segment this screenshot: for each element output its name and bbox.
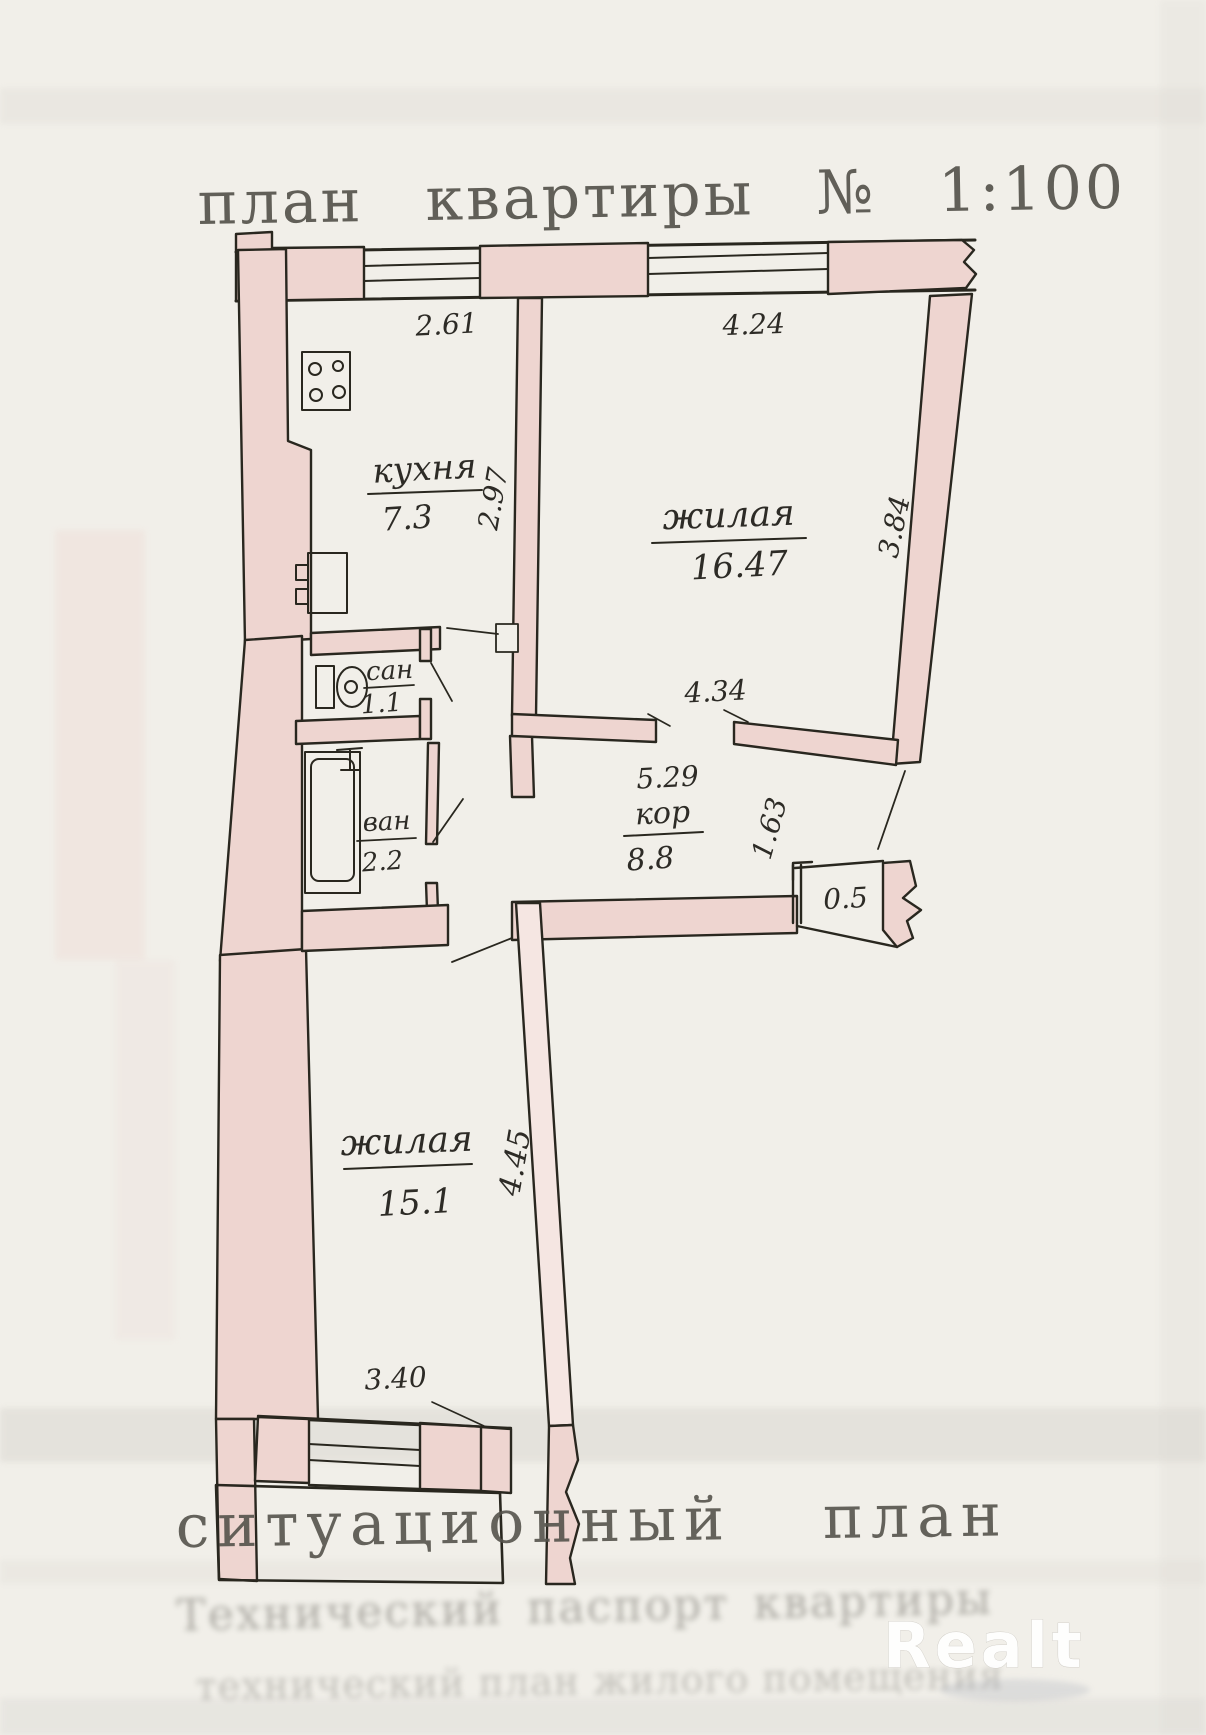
closet-corner-notch [793,862,812,880]
wall-wc-bath-divider [296,716,420,744]
dim-living1-bottom: 4.34 [683,673,748,709]
wall-bath-east [426,743,439,844]
dimension-ticks [432,710,748,1426]
room-labels: кухня 7.3 жилая 16.47 сан 1.1 ван 2.2 ко… [340,446,869,1225]
realt-watermark: Realt [883,1609,1086,1682]
living2-label: жилая [340,1119,474,1165]
pink-smear [115,960,175,1340]
living1-label: жилая [662,493,796,539]
kitchen-door-jamb [496,624,518,652]
edge-shade [1160,0,1206,1735]
kitchen-door-leaf [447,628,498,634]
corridor-label-underline [624,832,703,836]
pink-smear [55,530,145,960]
wall-corridor-stub [510,736,534,797]
paper-crease [0,1408,1206,1462]
footer-title: ситуационный план [175,1480,1009,1562]
wall-wc-east-top [420,629,431,661]
dim-living2-bottom: 3.40 [364,1360,428,1396]
dim-kitchen-side: 2.97 [471,465,515,533]
living1-window-icon [648,253,828,274]
bath-label-underline [357,838,416,841]
living2-label-underline [344,1164,472,1169]
toilet-icon [316,666,367,708]
dim-living1-top: 4.24 [721,307,785,342]
wall-left-kitchen [238,249,311,643]
paper-crease [0,1560,1206,1584]
dim-living2-side: 4.45 [492,1127,538,1200]
living2-area: 15.1 [377,1181,455,1225]
wall-pier-topmiddle [480,243,648,298]
wall-left-wetzone [220,636,302,961]
wall-left-living2 [216,949,318,1419]
corridor-label: кор [634,795,691,833]
wall-wc-east-stub [420,699,431,739]
bath-label: ван [362,806,411,838]
kitchen-label: кухня [371,446,477,491]
wall-kitchen-living [512,298,542,716]
bathtub-icon [305,752,360,893]
wall-living1-south-right [734,722,898,765]
dim-corridor-length: 5.29 [636,759,700,795]
wall-closet-right-broken [883,861,921,947]
bath-area: 2.2 [360,846,404,879]
wc-door-leaf [431,663,452,701]
wall-bottom-pier-right [420,1423,486,1491]
closet-area: 0.5 [822,881,868,916]
stove-icon [302,352,350,410]
floor-plan: кухня 7.3 жилая 16.47 сан 1.1 ван 2.2 ко… [216,232,976,1584]
living1-area: 16.47 [690,543,790,588]
dim-corridor-width: 1.63 [745,794,794,863]
entrance-door-leaf [878,771,905,849]
wc-label: сан [365,655,414,687]
wall-pier-topright [828,240,976,294]
kitchen-area: 7.3 [381,497,434,538]
wall-living1-south-left [512,714,656,742]
kitchen-window-icon [364,263,480,281]
wall-bottom-step [481,1427,511,1493]
wall-corridor-south-left [302,905,448,951]
bleed-smudge [940,1679,1090,1701]
wall-corridor-south-right [512,896,797,940]
page-title: план квартиры № 1:100 [197,153,1127,239]
wc-area: 1.1 [360,688,403,721]
dim-kitchen-top: 2.61 [414,306,479,342]
dim-tick [724,710,748,722]
corridor-area: 8.8 [625,840,675,878]
scanned-floor-plan-page: план квартиры № 1:100 [0,0,1206,1735]
wall-bottom-pier-left [255,1417,309,1483]
living2-door-leaf [452,938,512,962]
paper-crease [0,88,1206,124]
paper-crease [0,1698,1206,1735]
living1-label-underline [652,538,806,543]
